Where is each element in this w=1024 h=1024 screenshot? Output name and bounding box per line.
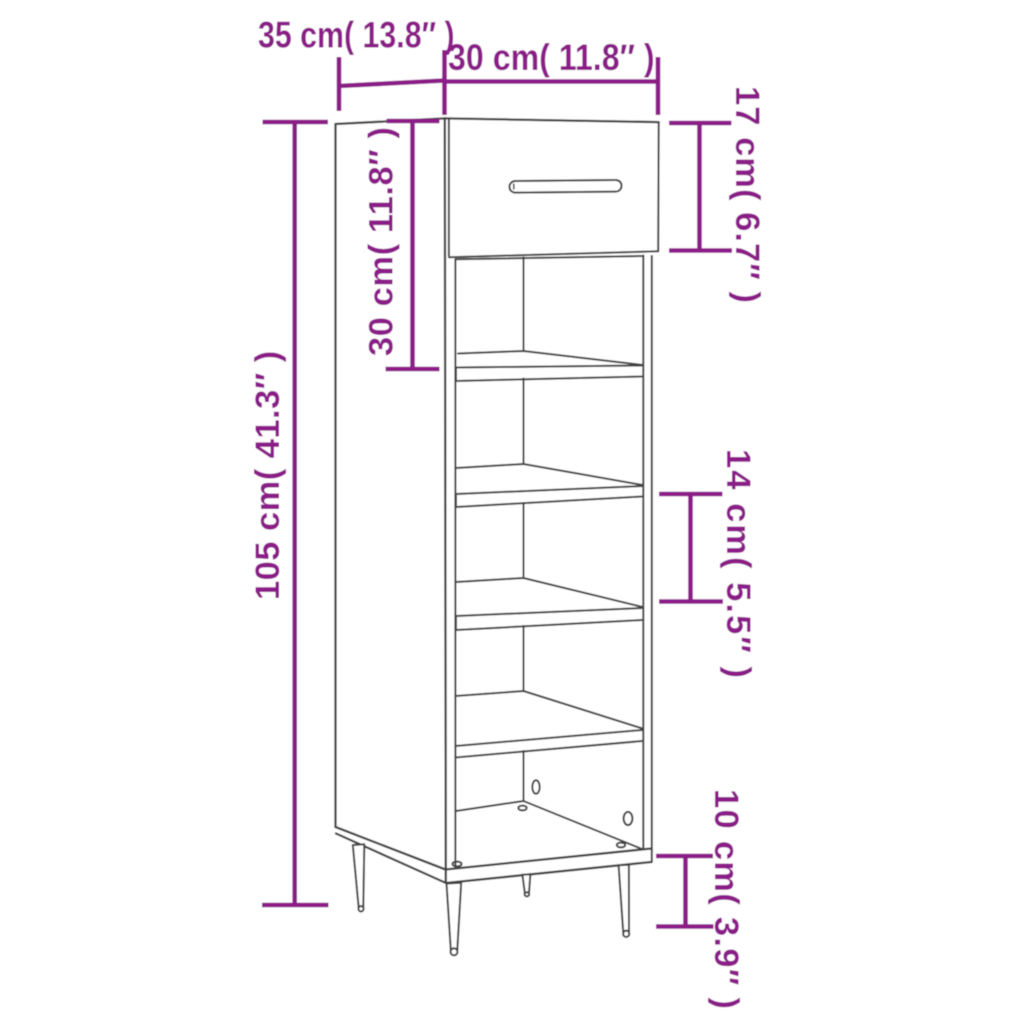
svg-text:14 cm( 5.5″ ): 14 cm( 5.5″ ) — [719, 449, 757, 680]
svg-text:30 cm( 11.8″ ): 30 cm( 11.8″ ) — [363, 126, 401, 356]
svg-text:10 cm( 3.9″ ): 10 cm( 3.9″ ) — [707, 789, 745, 1010]
svg-text:17 cm( 6.7″ ): 17 cm( 6.7″ ) — [728, 86, 766, 304]
svg-text:105 cm( 41.3″ ): 105 cm( 41.3″ ) — [249, 350, 287, 600]
svg-text:35 cm( 13.8″ ): 35 cm( 13.8″ ) — [258, 15, 455, 57]
svg-text:30 cm( 11.8″ ): 30 cm( 11.8″ ) — [448, 38, 655, 79]
